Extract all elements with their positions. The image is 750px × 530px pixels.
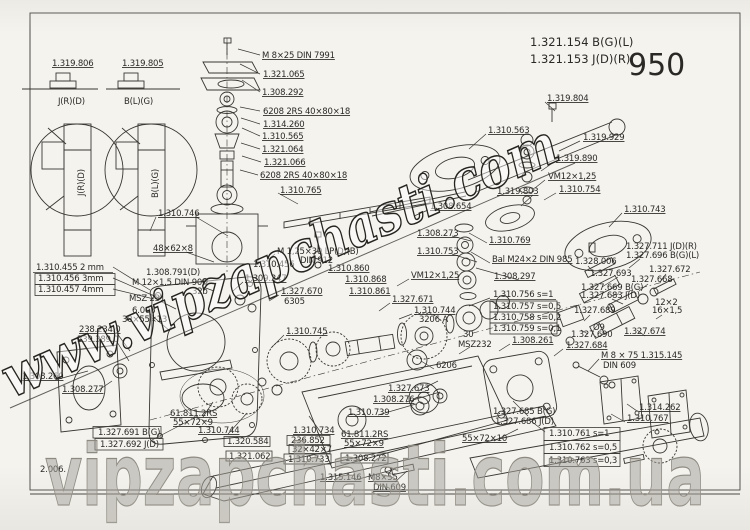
part-label: 1.310.759 s=0,1 [493, 324, 561, 334]
part-label: 1.319.804 [547, 94, 588, 104]
part-label: 1.319.805 [122, 59, 163, 69]
part-label: M 8 × 75 1.315.145 [601, 351, 682, 361]
part-label: J(R)(D) [77, 169, 87, 197]
page-number: 950 [628, 48, 685, 83]
part-label: 1.314.260 [263, 120, 304, 130]
part-label: 1.310.769 [489, 236, 530, 246]
part-label: 1.328.006 [575, 257, 616, 267]
part-label: 1.310.754 [559, 185, 600, 195]
part-label: 1.308.276 [373, 395, 414, 405]
part-label: 1.327.689 [574, 306, 615, 316]
part-label: Bal M24×2 DIN 985 [492, 255, 572, 265]
part-label: 1.310.455 2 mm [36, 263, 104, 273]
part-label: DIN 609 [603, 361, 636, 371]
catalog-page-scan: 1.321.154 B(G)(L) 1.321.153 J(D)(R) 950 … [0, 0, 750, 530]
part-label: MSZ232 [458, 340, 492, 350]
part-label: 1.308.297 [494, 272, 535, 282]
part-label: 3206 A [419, 315, 448, 325]
part-label: J(R)(D) [57, 97, 85, 107]
part-label: 1.327.696 B(G)(L) [626, 251, 699, 261]
title-block: 1.321.154 B(G)(L) 1.321.153 J(D)(R) 950 [530, 35, 685, 83]
part-label: 1.321.065 [263, 70, 304, 80]
part-label: 1.310.745 [286, 327, 327, 337]
part-label: 1.319.929 [583, 133, 624, 143]
part-label: 1.310.743 [624, 205, 665, 215]
part-label: 1.327.693 [590, 269, 631, 279]
part-label: 6208 2RS 40×80×18 [260, 171, 347, 181]
part-label: 1.310.765 [280, 186, 321, 196]
part-label: 1.310.767 [627, 414, 668, 424]
part-label: 1.310.753 [417, 247, 458, 257]
part-label: 1.319.806 [52, 59, 93, 69]
part-label: B(L)(G) [124, 97, 153, 107]
part-label: 1.310.565 [262, 132, 303, 142]
part-label: 1.327.673 [388, 384, 429, 394]
part-label: 1.310.757 s=0,5 [493, 302, 561, 312]
part-label: 1.310.746 [158, 209, 199, 219]
part-label: 1.327.690 [571, 330, 612, 340]
part-label: 6206 [436, 361, 457, 371]
part-label: 1.310.861 [349, 287, 390, 297]
part-label: 30 [463, 330, 473, 340]
part-label: 1.327.686 J(D) [495, 417, 554, 427]
part-label: 48×62×8 [153, 244, 193, 254]
part-label: 6208 2RS 40×80×18 [263, 107, 350, 117]
catalog-number-right: 1.321.153 J(D)(R) [530, 52, 630, 66]
part-label: 1.310.758 s=0,2 [493, 313, 561, 323]
part-label: 1.327.674 [624, 327, 665, 337]
part-label: 1.321.066 [264, 158, 305, 168]
watermark-bottom: vipzapchasti.com.ua [45, 427, 705, 526]
part-label: 1.308.292 [262, 88, 303, 98]
part-label: 1.310.756 s=1 [493, 290, 553, 300]
part-label: 1.314.262 [639, 403, 680, 413]
part-label: 1.308.261 [512, 336, 553, 346]
part-label: M 8×25 DIN 7991 [262, 51, 335, 61]
part-label: 1.310.456 3mm [38, 274, 103, 284]
part-label: 1.310.457 4mm [38, 285, 103, 295]
part-label: 16×1,5 [652, 306, 682, 316]
exploded-parts-diagram: 1.321.154 B(G)(L) 1.321.153 J(D)(R) 950 … [0, 0, 750, 530]
part-label: 1.327.671 [392, 295, 433, 305]
part-label: B(L)(G) [151, 169, 161, 198]
part-label: 1.310.739 [348, 408, 389, 418]
part-label: 1.327.684 [566, 341, 607, 351]
part-label: 1.310.868 [345, 275, 386, 285]
part-label: 1.321.064 [262, 145, 303, 155]
part-label: 1.327.685 B(G) [493, 407, 555, 417]
part-label: 6305 [284, 297, 305, 307]
part-label: 1.327.672 [649, 265, 690, 275]
part-label: 1.327.683 J(D) [581, 291, 640, 301]
part-label: VM12×1,25 [411, 271, 459, 281]
catalog-number-left: 1.321.154 B(G)(L) [530, 35, 633, 49]
mount-detail-views [22, 73, 197, 256]
